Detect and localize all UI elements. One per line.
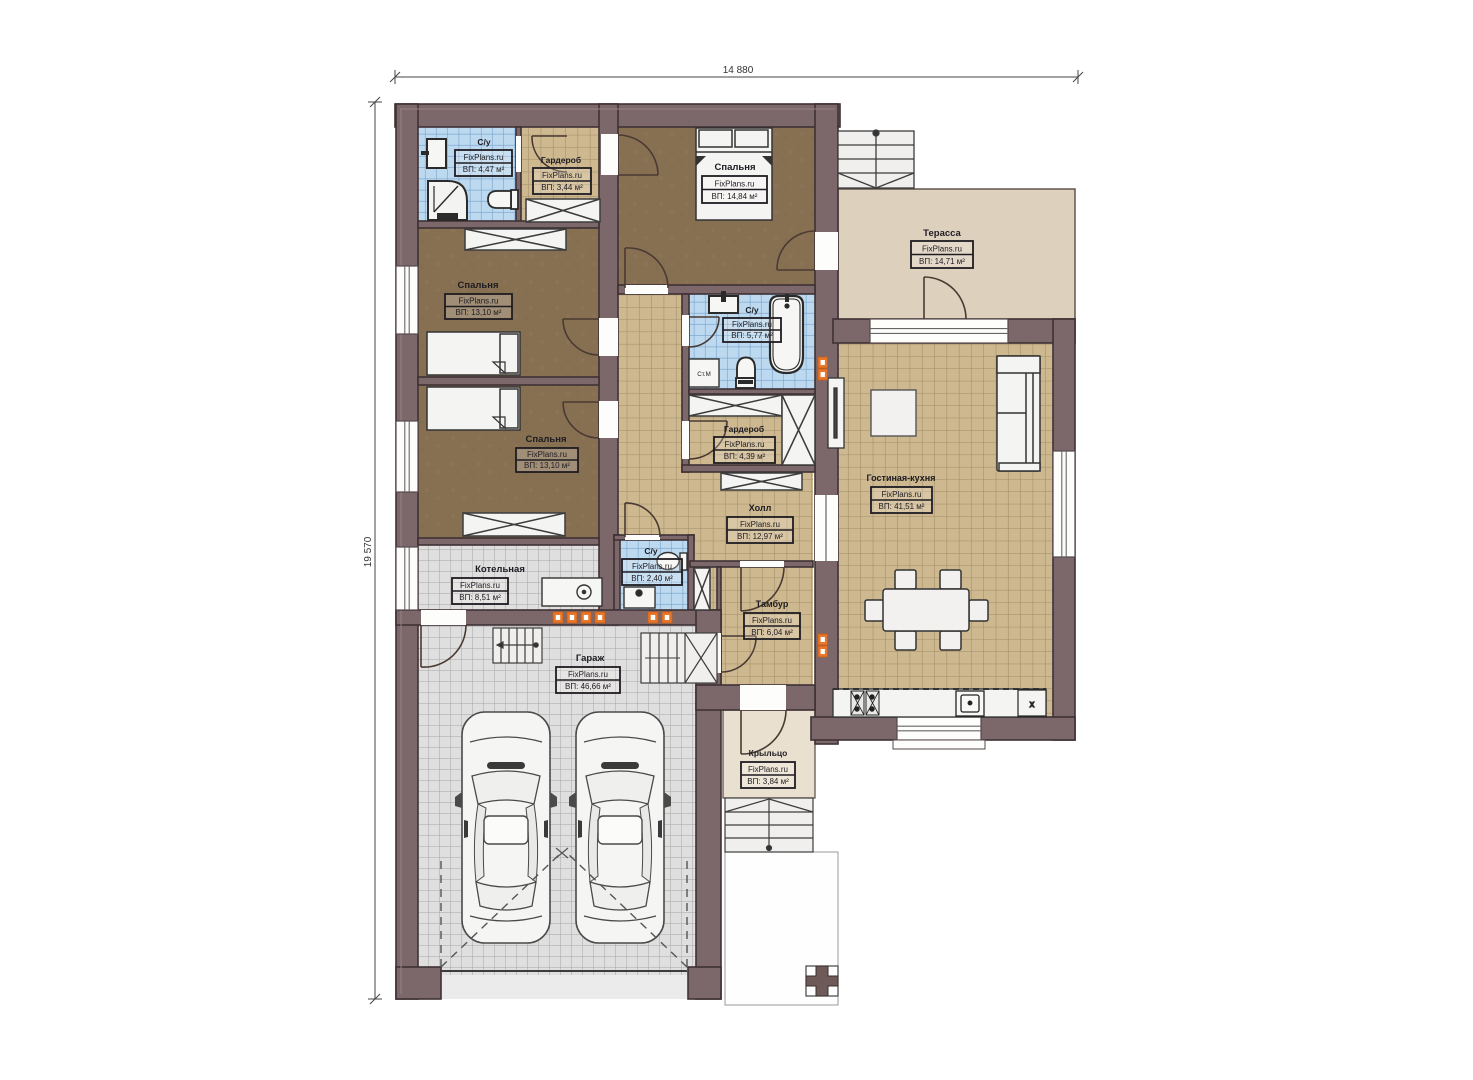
svg-text:FixPlans.ru: FixPlans.ru bbox=[460, 581, 500, 590]
svg-text:ВП: 3,44 м²: ВП: 3,44 м² bbox=[541, 183, 583, 192]
svg-text:Спальня: Спальня bbox=[457, 280, 498, 291]
svg-text:ВП: 8,51 м²: ВП: 8,51 м² bbox=[459, 593, 501, 602]
svg-text:x: x bbox=[1030, 699, 1035, 709]
svg-text:ВП: 12,97 м²: ВП: 12,97 м² bbox=[737, 532, 783, 541]
svg-text:ВП: 14,84 м²: ВП: 14,84 м² bbox=[712, 192, 758, 201]
svg-text:Спальня: Спальня bbox=[714, 162, 755, 173]
svg-text:FixPlans.ru: FixPlans.ru bbox=[632, 562, 672, 571]
svg-text:ВП: 13,10 м²: ВП: 13,10 м² bbox=[524, 461, 570, 470]
svg-text:FixPlans.ru: FixPlans.ru bbox=[748, 765, 788, 774]
svg-text:ВП: 46,66 м²: ВП: 46,66 м² bbox=[565, 682, 611, 691]
svg-text:ВП: 6,04 м²: ВП: 6,04 м² bbox=[751, 628, 793, 637]
svg-text:Котельная: Котельная bbox=[475, 564, 525, 575]
svg-text:FixPlans.ru: FixPlans.ru bbox=[752, 616, 792, 625]
svg-text:ВП: 4,39 м²: ВП: 4,39 м² bbox=[724, 452, 766, 461]
svg-text:FixPlans.ru: FixPlans.ru bbox=[732, 320, 772, 329]
svg-text:Гостиная-кухня: Гостиная-кухня bbox=[867, 473, 936, 483]
svg-text:ВП: 14,71 м²: ВП: 14,71 м² bbox=[919, 257, 965, 266]
svg-text:ВП: 13,10 м²: ВП: 13,10 м² bbox=[456, 308, 502, 317]
svg-text:FixPlans.ru: FixPlans.ru bbox=[542, 171, 582, 180]
svg-text:Гардероб: Гардероб bbox=[541, 155, 581, 165]
svg-text:FixPlans.ru: FixPlans.ru bbox=[740, 520, 780, 529]
svg-text:С/у: С/у bbox=[745, 305, 759, 315]
svg-text:Ст.М: Ст.М bbox=[697, 371, 711, 378]
svg-text:Тамбур: Тамбур bbox=[756, 599, 789, 609]
svg-text:ВП: 41,51 м²: ВП: 41,51 м² bbox=[879, 502, 925, 511]
svg-text:FixPlans.ru: FixPlans.ru bbox=[463, 153, 503, 162]
svg-text:Терасса: Терасса bbox=[923, 228, 961, 239]
svg-text:ВП: 5,77 м²: ВП: 5,77 м² bbox=[731, 331, 773, 340]
svg-text:ВП: 2,40 м²: ВП: 2,40 м² bbox=[631, 574, 673, 583]
svg-text:FixPlans.ru: FixPlans.ru bbox=[714, 179, 754, 188]
svg-text:FixPlans.ru: FixPlans.ru bbox=[881, 490, 921, 499]
svg-text:19 570: 19 570 bbox=[363, 536, 374, 567]
svg-text:Спальня: Спальня bbox=[525, 434, 566, 445]
svg-text:Холл: Холл bbox=[749, 503, 772, 513]
svg-text:14 880: 14 880 bbox=[723, 65, 754, 76]
svg-text:С/у: С/у bbox=[477, 137, 491, 147]
svg-text:FixPlans.ru: FixPlans.ru bbox=[527, 450, 567, 459]
svg-text:Крыльцо: Крыльцо bbox=[749, 748, 788, 758]
svg-text:Гараж: Гараж bbox=[576, 653, 605, 664]
svg-text:FixPlans.ru: FixPlans.ru bbox=[458, 296, 498, 305]
svg-text:FixPlans.ru: FixPlans.ru bbox=[568, 670, 608, 679]
svg-text:ВП: 4,47 м²: ВП: 4,47 м² bbox=[463, 165, 505, 174]
svg-text:Гардероб: Гардероб bbox=[724, 424, 764, 434]
svg-text:С/у: С/у bbox=[644, 546, 658, 556]
svg-text:FixPlans.ru: FixPlans.ru bbox=[922, 244, 962, 253]
svg-text:FixPlans.ru: FixPlans.ru bbox=[724, 440, 764, 449]
svg-text:ВП: 3,84 м²: ВП: 3,84 м² bbox=[747, 777, 789, 786]
